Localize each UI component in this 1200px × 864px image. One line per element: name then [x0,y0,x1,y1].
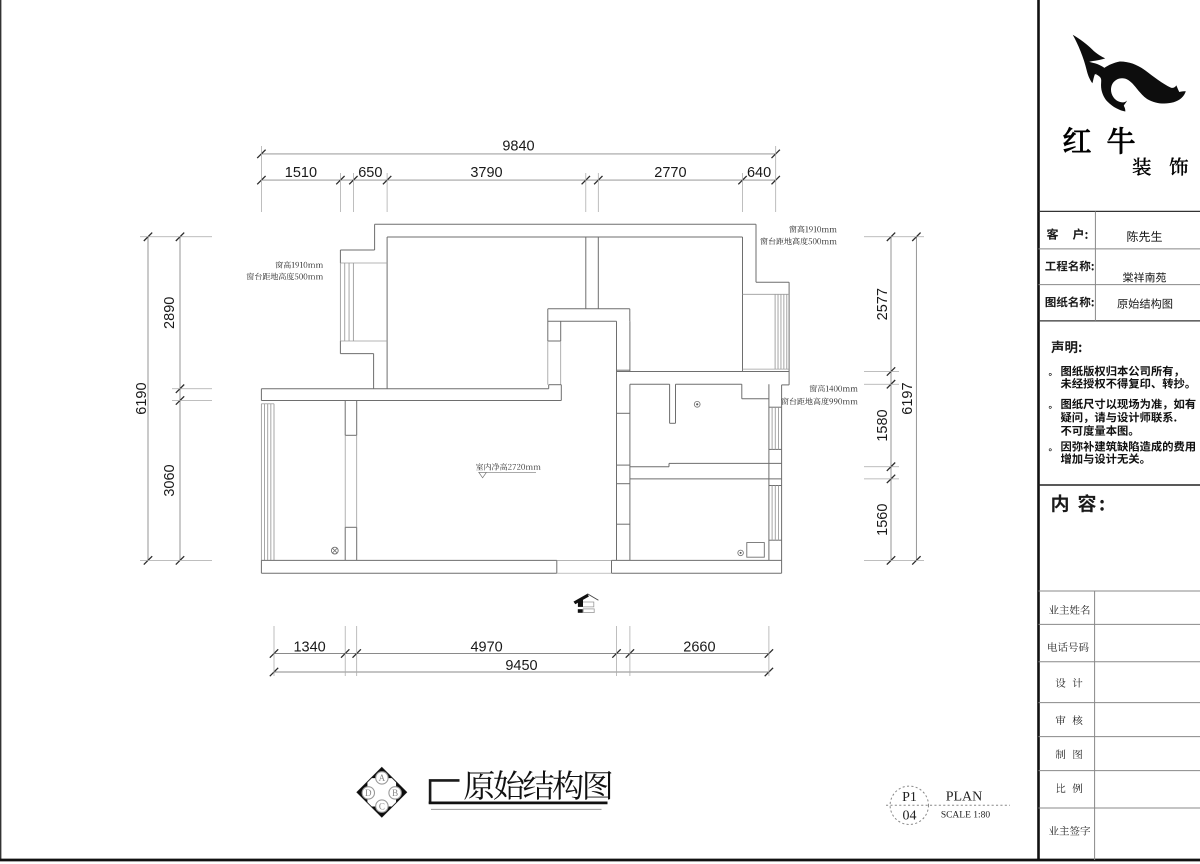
svg-text:640: 640 [747,165,771,181]
svg-text:9840: 9840 [502,138,534,154]
svg-text:3060: 3060 [162,464,178,496]
svg-text:6190: 6190 [134,382,150,414]
svg-text:1580: 1580 [875,409,891,441]
svg-text:2660: 2660 [683,639,715,655]
svg-text:1560: 1560 [875,504,891,536]
svg-text:04: 04 [903,809,917,824]
svg-text:650: 650 [358,165,382,181]
svg-text:2577: 2577 [875,288,891,320]
svg-text:2890: 2890 [162,297,178,329]
svg-text:D: D [365,788,372,798]
svg-text:A: A [379,773,386,783]
svg-text:SCALE 1:80: SCALE 1:80 [941,811,991,821]
svg-text:2770: 2770 [654,165,686,181]
svg-text:9450: 9450 [505,658,537,674]
svg-text:C: C [379,801,385,811]
svg-text:P1: P1 [902,790,917,805]
svg-text:1510: 1510 [285,165,317,181]
svg-text:PLAN: PLAN [946,789,983,804]
svg-text:3790: 3790 [470,165,502,181]
svg-text:4970: 4970 [470,639,502,655]
svg-text:6197: 6197 [900,382,916,414]
svg-text:1340: 1340 [293,639,325,655]
svg-text:B: B [392,788,398,798]
